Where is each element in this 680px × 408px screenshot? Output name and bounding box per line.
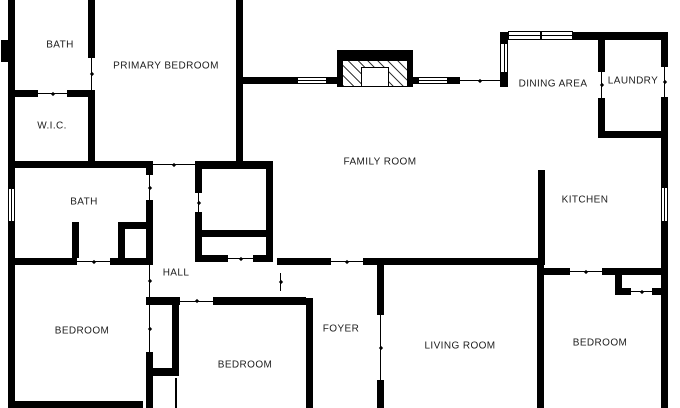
door-opening (570, 268, 602, 275)
wall-segment (377, 380, 384, 408)
wall-segment (15, 258, 77, 265)
door-opening (377, 315, 384, 380)
wall-segment (377, 265, 384, 315)
room-label-foyer: FOYER (323, 324, 359, 335)
wall-segment (363, 258, 545, 265)
wall-segment (8, 161, 146, 168)
wall-segment (652, 288, 668, 295)
door-opening (460, 77, 500, 84)
wall-segment (146, 352, 153, 408)
wall-segment (661, 222, 668, 408)
wall-segment (236, 77, 297, 84)
wall-segment (1, 40, 8, 62)
window-symbol (661, 187, 668, 222)
room-label-laundry: LAUNDRY (608, 76, 658, 87)
wall-segment (661, 32, 668, 67)
door-opening (331, 258, 363, 265)
wall-segment (598, 131, 668, 138)
window-symbol (418, 77, 448, 84)
door-opening (180, 297, 213, 305)
door-opening (195, 193, 202, 212)
wall-segment (110, 258, 153, 265)
door-opening (228, 255, 253, 262)
floor-plan: BATHPRIMARY BEDROOMW.I.C.BATHHALLFAMILY … (0, 0, 680, 408)
wall-segment (448, 77, 460, 84)
wall-segment (118, 222, 146, 229)
wall-segment (306, 298, 313, 408)
wall-segment (195, 161, 273, 169)
wall-segment (543, 268, 570, 275)
wall-segment (500, 73, 508, 87)
door-opening (146, 305, 153, 352)
window-symbol (508, 31, 541, 40)
window-symbol (297, 77, 327, 84)
wall-segment (615, 288, 631, 295)
wall-segment (598, 32, 605, 72)
door-opening (88, 58, 95, 90)
wall-segment (327, 77, 337, 84)
wall-segment (146, 200, 153, 258)
door-opening (661, 67, 668, 97)
room-label-bedroom-center: BEDROOM (218, 360, 272, 371)
wall-segment (602, 268, 668, 275)
window-symbol (500, 43, 508, 73)
wall-segment (146, 297, 180, 305)
wall-segment (15, 401, 143, 408)
room-label-wic: W.I.C. (37, 121, 67, 132)
room-label-bath-primary: BATH (46, 40, 74, 51)
wall-segment (195, 255, 228, 262)
wall-segment (8, 90, 39, 97)
wall-segment (8, 222, 15, 408)
wall-segment (277, 258, 331, 265)
door-opening (153, 161, 195, 168)
door-opening (277, 273, 284, 291)
room-label-bedroom-right: BEDROOM (573, 338, 627, 349)
room-label-bedroom-left: BEDROOM (55, 326, 109, 337)
window-symbol (8, 188, 15, 222)
wall-segment (538, 170, 545, 265)
wall-segment (88, 90, 95, 168)
wall-segment (88, 0, 95, 58)
wall-segment (573, 32, 668, 40)
room-label-dining-area: DINING AREA (519, 79, 588, 90)
door-opening (146, 265, 153, 297)
wall-segment (236, 0, 243, 168)
wall-segment (146, 161, 153, 175)
window-symbol (541, 31, 573, 40)
door-opening (146, 175, 153, 200)
door-opening (598, 72, 605, 98)
door-opening (38, 90, 67, 97)
room-label-kitchen: KITCHEN (562, 195, 609, 206)
room-label-bath-hall: BATH (70, 197, 98, 208)
wall-segment (266, 169, 273, 262)
wall-segment (195, 230, 273, 237)
wall-segment (500, 32, 508, 43)
room-label-hall: HALL (163, 268, 190, 279)
wall-segment (661, 97, 668, 187)
door-opening (631, 288, 652, 295)
wall-segment (253, 255, 273, 262)
thin-line (175, 378, 177, 408)
wall-segment (72, 222, 79, 258)
fireplace-firebox (361, 67, 389, 87)
wall-segment (195, 169, 202, 193)
room-label-primary-bedroom: PRIMARY BEDROOM (113, 61, 219, 72)
wall-segment (537, 265, 544, 408)
wall-segment (213, 297, 306, 305)
wall-segment (172, 305, 179, 375)
room-label-living-room: LIVING ROOM (424, 341, 495, 352)
door-opening (77, 258, 110, 265)
room-label-family-room: FAMILY ROOM (344, 157, 417, 168)
